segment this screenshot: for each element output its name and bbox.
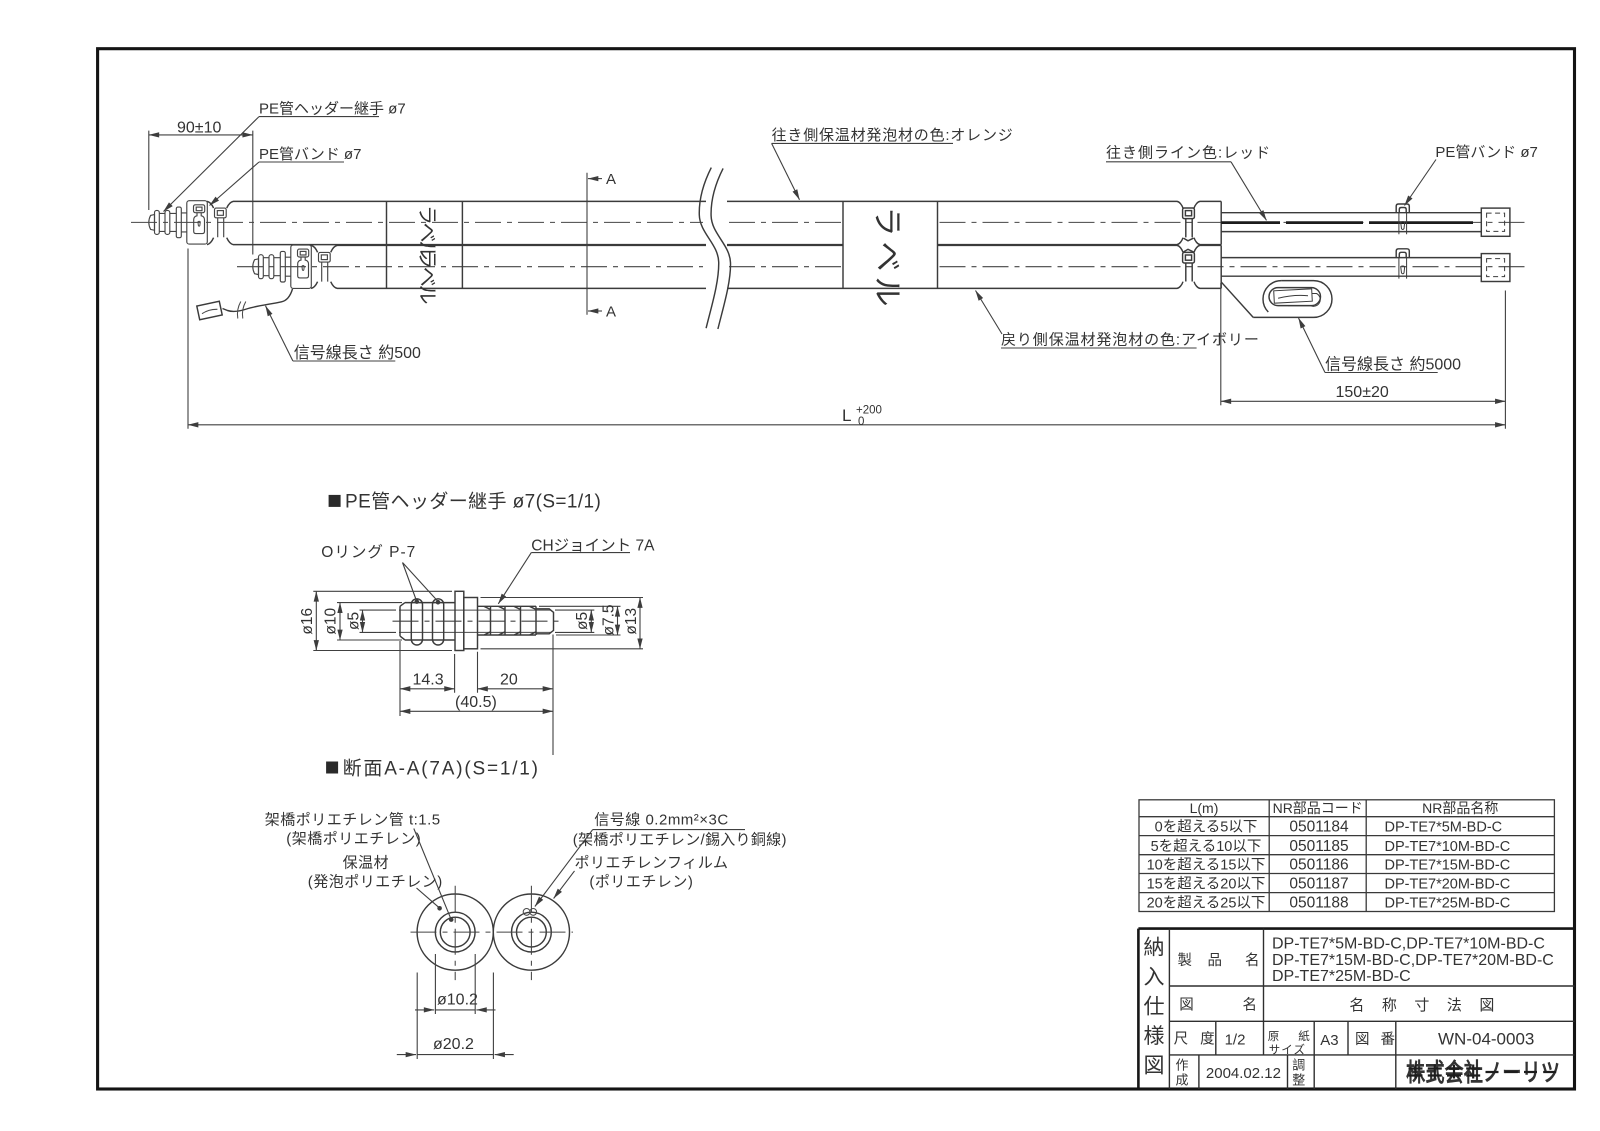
svg-text:(架橋ポリエチレン/錫入り銅線): (架橋ポリエチレン/錫入り銅線)	[573, 831, 787, 848]
svg-text:ø16: ø16	[299, 608, 316, 635]
svg-text:調: 調	[1292, 1057, 1305, 1072]
svg-text:名称寸法図: 名称寸法図	[1349, 997, 1512, 1014]
svg-text:尺度: 尺度	[1174, 1031, 1227, 1048]
svg-text:(架橋ポリエチレン): (架橋ポリエチレン)	[286, 831, 421, 848]
svg-text:14.3: 14.3	[413, 672, 444, 689]
svg-text:DP-TE7*25M-BD-C: DP-TE7*25M-BD-C	[1385, 896, 1511, 912]
svg-text:作: 作	[1175, 1057, 1188, 1072]
svg-text:ø5: ø5	[574, 612, 591, 630]
svg-text:サイズ: サイズ	[1269, 1042, 1306, 1056]
svg-text:A: A	[606, 171, 616, 188]
svg-text:DP-TE7*5M-BD-C,DP-TE7*10M-BD-C: DP-TE7*5M-BD-C,DP-TE7*10M-BD-C	[1272, 935, 1545, 952]
svg-text:戻り側保温材発泡材の色:アイボリー: 戻り側保温材発泡材の色:アイボリー	[1001, 332, 1260, 349]
svg-text:仕: 仕	[1144, 996, 1165, 1019]
svg-text:1/2: 1/2	[1225, 1031, 1246, 1048]
svg-text:ラベル: ラベル	[870, 207, 903, 312]
svg-text:PE管バンド ø7: PE管バンド ø7	[1435, 144, 1537, 161]
svg-text:PE管ヘッダー継手 ø7: PE管ヘッダー継手 ø7	[259, 101, 406, 118]
svg-text:信号線長さ 約5000: 信号線長さ 約5000	[1325, 355, 1461, 373]
svg-text:ポリエチレンフィルム: ポリエチレンフィルム	[575, 855, 729, 872]
svg-text:整: 整	[1292, 1072, 1305, 1087]
svg-text:2004.02.12: 2004.02.12	[1206, 1065, 1281, 1082]
svg-text:(発泡ポリエチレン): (発泡ポリエチレン)	[308, 873, 443, 890]
svg-text:成: 成	[1175, 1072, 1188, 1087]
svg-text:入: 入	[1144, 966, 1165, 989]
svg-text:ø5: ø5	[345, 612, 362, 630]
svg-text:90±10: 90±10	[177, 119, 221, 136]
svg-text:15を超える20以下: 15を超える20以下	[1147, 876, 1266, 893]
svg-text:製品名: 製品名	[1178, 952, 1260, 969]
svg-text:0501185: 0501185	[1289, 838, 1348, 855]
svg-text:信号線 0.2mm²×3C: 信号線 0.2mm²×3C	[594, 812, 728, 829]
svg-text:PE管ヘッダー継手 ø7(S=1/1): PE管ヘッダー継手 ø7(S=1/1)	[345, 490, 601, 512]
svg-text:保温材: 保温材	[343, 855, 390, 872]
svg-text:図番: 図番	[1355, 1031, 1406, 1048]
svg-text:WN-04-0003: WN-04-0003	[1438, 1029, 1534, 1048]
svg-text:0: 0	[858, 416, 864, 428]
svg-text:図: 図	[1144, 1055, 1165, 1078]
svg-text:ラベル: ラベル	[416, 249, 438, 304]
svg-text:Oリング P-7: Oリング P-7	[321, 543, 416, 561]
svg-text:10を超える15以下: 10を超える15以下	[1147, 857, 1266, 874]
svg-text:ø10: ø10	[323, 608, 340, 635]
svg-text:DP-TE7*25M-BD-C: DP-TE7*25M-BD-C	[1272, 968, 1411, 985]
svg-text:150±20: 150±20	[1336, 384, 1389, 401]
svg-text:ø13: ø13	[623, 608, 640, 635]
svg-text:A: A	[606, 304, 616, 321]
svg-text:往き側ライン色:レッド: 往き側ライン色:レッド	[1106, 145, 1271, 162]
svg-text:5を超える10以下: 5を超える10以下	[1151, 838, 1262, 855]
svg-text:納: 納	[1144, 937, 1165, 960]
svg-text:0501187: 0501187	[1289, 876, 1348, 893]
svg-text:信号線長さ 約500: 信号線長さ 約500	[294, 344, 421, 362]
svg-text:DP-TE7*10M-BD-C: DP-TE7*10M-BD-C	[1385, 839, 1511, 855]
svg-text:往き側保温材発泡材の色:オレンジ: 往き側保温材発泡材の色:オレンジ	[772, 127, 1014, 144]
svg-text:A3: A3	[1320, 1032, 1338, 1049]
svg-text:L(m): L(m)	[1190, 800, 1219, 816]
svg-text:+200: +200	[856, 404, 882, 416]
svg-text:DP-TE7*15M-BD-C: DP-TE7*15M-BD-C	[1385, 858, 1511, 874]
svg-text:ø10.2: ø10.2	[437, 991, 478, 1008]
svg-text:0501186: 0501186	[1289, 857, 1348, 874]
svg-text:0501184: 0501184	[1289, 819, 1349, 836]
svg-text:断面A-A(7A)(S=1/1): 断面A-A(7A)(S=1/1)	[343, 757, 540, 779]
svg-text:0501188: 0501188	[1289, 895, 1348, 912]
svg-text:NR部品名称: NR部品名称	[1422, 800, 1498, 816]
svg-text:DP-TE7*20M-BD-C: DP-TE7*20M-BD-C	[1385, 877, 1511, 893]
svg-text:DP-TE7*15M-BD-C,DP-TE7*20M-BD-: DP-TE7*15M-BD-C,DP-TE7*20M-BD-C	[1272, 952, 1554, 969]
svg-text:DP-TE7*5M-BD-C: DP-TE7*5M-BD-C	[1385, 820, 1503, 836]
svg-text:L: L	[842, 406, 851, 425]
svg-text:PE管バンド ø7: PE管バンド ø7	[259, 146, 361, 163]
svg-text:(40.5): (40.5)	[455, 694, 497, 711]
svg-text:ø7.5: ø7.5	[600, 604, 617, 635]
svg-text:20を超える25以下: 20を超える25以下	[1147, 895, 1266, 912]
svg-text:0を超える5以下: 0を超える5以下	[1155, 819, 1258, 836]
svg-text:(ポリエチレン): (ポリエチレン)	[589, 873, 693, 890]
svg-text:架橋ポリエチレン管 t:1.5: 架橋ポリエチレン管 t:1.5	[265, 812, 441, 829]
svg-text:NR部品コード: NR部品コード	[1273, 800, 1363, 816]
svg-text:ø20.2: ø20.2	[433, 1036, 474, 1053]
svg-text:様: 様	[1144, 1025, 1165, 1048]
svg-text:20: 20	[500, 672, 518, 689]
